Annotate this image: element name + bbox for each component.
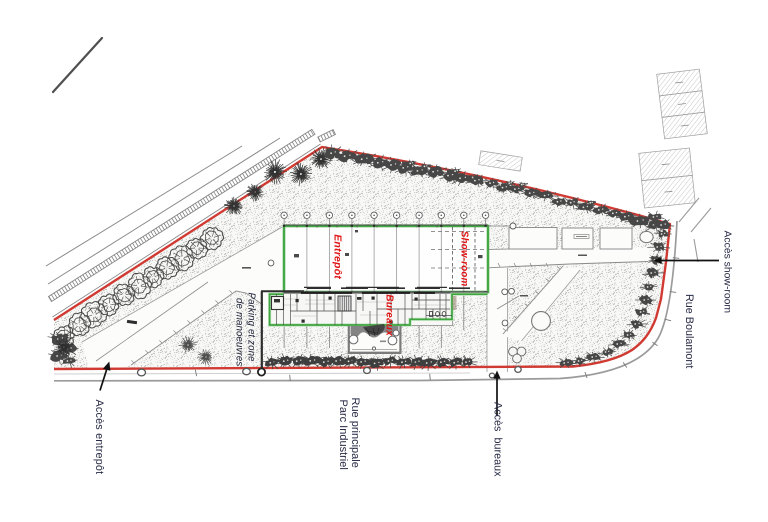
svg-text:Parking et zone: Parking et zone: [246, 293, 257, 363]
svg-text:Rue Boulamont: Rue Boulamont: [683, 294, 695, 368]
svg-text:Bureaux: Bureaux: [383, 294, 394, 336]
svg-text:Accès entrepôt: Accès entrepôt: [93, 400, 105, 475]
svg-text:Rue principale: Rue principale: [349, 398, 361, 468]
svg-text:Entrepôt: Entrepôt: [331, 234, 343, 279]
svg-text:Parc Industriel: Parc Industriel: [337, 400, 349, 470]
svg-text:de manoeuvres: de manoeuvres: [234, 298, 245, 366]
svg-text:bureaux: bureaux: [492, 438, 504, 478]
svg-text:Accès show-room: Accès show-room: [722, 231, 733, 314]
svg-text:Accès: Accès: [492, 402, 504, 432]
svg-text:Show-room: Show-room: [459, 231, 470, 287]
